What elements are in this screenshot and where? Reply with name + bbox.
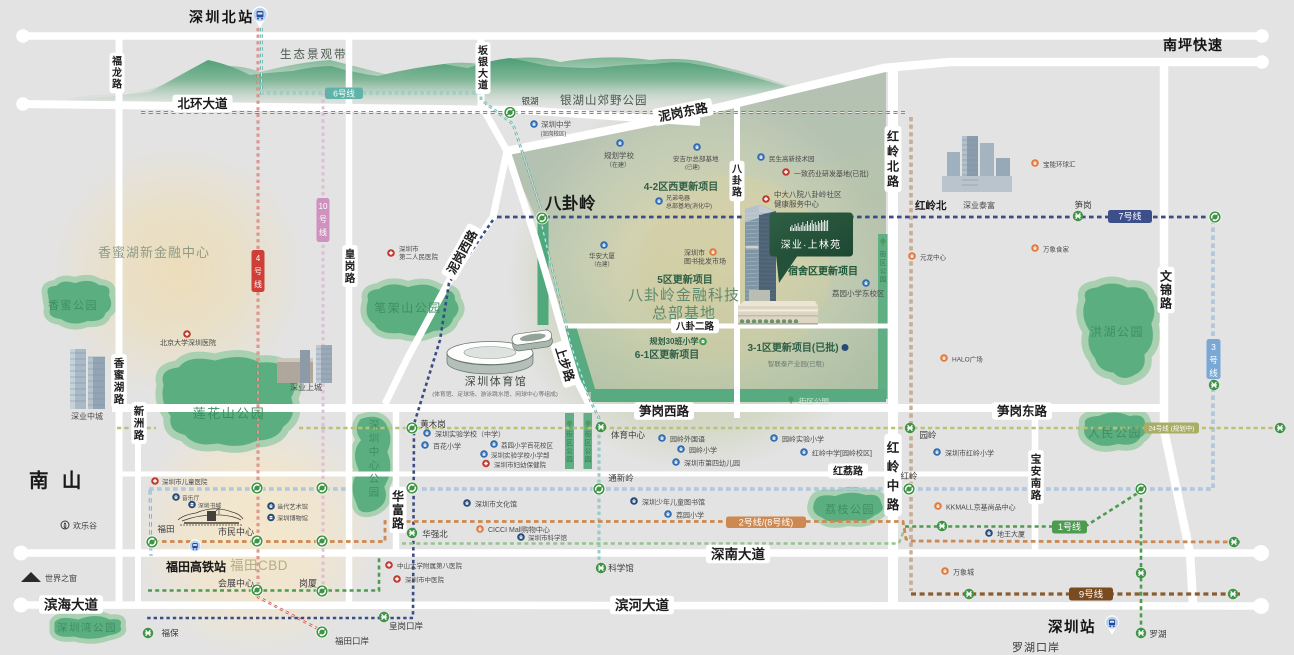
svg-text:富: 富 <box>392 502 404 517</box>
svg-text:区: 区 <box>566 439 573 447</box>
svg-text:黄木岗: 黄木岗 <box>420 419 446 429</box>
svg-text:园岭外国语: 园岭外国语 <box>670 435 705 444</box>
svg-text:香蜜湖新金融中心: 香蜜湖新金融中心 <box>98 245 210 260</box>
svg-text:中: 中 <box>369 445 380 458</box>
svg-text:深圳市: 深圳市 <box>684 248 705 257</box>
svg-text:岭: 岭 <box>887 144 899 159</box>
svg-text:号: 号 <box>254 267 262 276</box>
svg-text:2号线/(8号线): 2号线/(8号线) <box>739 516 794 527</box>
svg-text:4-2区西更新项目: 4-2区西更新项目 <box>644 180 718 193</box>
svg-text:南: 南 <box>1031 476 1042 489</box>
svg-text:八: 八 <box>731 164 743 176</box>
svg-text:深圳市: 深圳市 <box>399 244 419 253</box>
svg-text:深业泰富: 深业泰富 <box>963 200 995 210</box>
svg-text:路: 路 <box>887 497 900 512</box>
svg-text:公: 公 <box>585 448 592 455</box>
svg-text:文: 文 <box>1160 268 1173 283</box>
svg-text:深圳中学: 深圳中学 <box>541 119 571 129</box>
svg-text:罗湖: 罗湖 <box>1149 629 1166 639</box>
svg-text:深圳书城: 深圳书城 <box>198 502 221 510</box>
svg-text:深圳少年儿童图书馆: 深圳少年儿童图书馆 <box>642 498 705 507</box>
svg-text:会展中心: 会展中心 <box>218 578 254 589</box>
svg-text:皇岗口岸: 皇岗口岸 <box>389 621 424 631</box>
svg-text:笋岗东路: 笋岗东路 <box>997 404 1048 419</box>
svg-text:岗: 岗 <box>345 259 356 272</box>
svg-text:圳: 圳 <box>369 433 380 445</box>
svg-text:元龙中心: 元龙中心 <box>920 253 947 262</box>
svg-text:银湖: 银湖 <box>521 96 538 106</box>
svg-text:荔枝公园: 荔枝公园 <box>825 502 875 516</box>
svg-text:宿舍区更新项目: 宿舍区更新项目 <box>788 265 858 278</box>
svg-text:（在建）: （在建） <box>606 161 630 169</box>
svg-text:红: 红 <box>887 129 899 144</box>
svg-text:北京大学深圳医院: 北京大学深圳医院 <box>160 338 216 347</box>
svg-text:心: 心 <box>369 460 380 472</box>
svg-text:线: 线 <box>1209 368 1218 378</box>
svg-text:公: 公 <box>369 473 380 485</box>
svg-text:科学馆: 科学馆 <box>608 563 634 573</box>
svg-text:道: 道 <box>478 78 488 91</box>
svg-text:宝: 宝 <box>1031 452 1042 465</box>
svg-text:规划30班小学: 规划30班小学 <box>650 336 699 346</box>
svg-text:红荔路: 红荔路 <box>833 465 864 478</box>
svg-text:福保: 福保 <box>161 628 179 638</box>
svg-text:音乐厅: 音乐厅 <box>182 494 200 502</box>
svg-text:街: 街 <box>880 249 887 258</box>
svg-text:3: 3 <box>1211 342 1216 352</box>
svg-text:福田: 福田 <box>157 524 174 534</box>
svg-text:八卦二路: 八卦二路 <box>675 320 715 332</box>
svg-text:路: 路 <box>1031 488 1042 501</box>
svg-text:市民中心: 市民中心 <box>218 526 254 537</box>
svg-text:总部基地: 总部基地 <box>652 305 716 322</box>
svg-text:深圳博物馆: 深圳博物馆 <box>277 515 308 523</box>
svg-text:笋岗: 笋岗 <box>1074 200 1091 210</box>
svg-text:街: 街 <box>585 429 592 438</box>
svg-text:银湖山郊野公园: 银湖山郊野公园 <box>560 93 648 107</box>
svg-text:当代艺术馆: 当代艺术馆 <box>277 503 308 511</box>
svg-text:红岭北: 红岭北 <box>915 199 947 212</box>
svg-text:园: 园 <box>585 456 592 464</box>
svg-text:八卦岭: 八卦岭 <box>545 193 596 213</box>
svg-text:红岭中学[园岭校区]: 红岭中学[园岭校区] <box>812 449 872 458</box>
svg-text:(已建): (已建) <box>685 163 700 171</box>
svg-text:规划学校: 规划学校 <box>604 150 634 160</box>
svg-text:一致药业研发基地(已批): 一致药业研发基地(已批) <box>794 169 869 178</box>
svg-text:深圳市中医院: 深圳市中医院 <box>405 575 445 584</box>
svg-text:莲花山公园: 莲花山公园 <box>193 406 266 421</box>
svg-text:中大八院八卦岭社区: 中大八院八卦岭社区 <box>774 189 842 199</box>
svg-text:华强北: 华强北 <box>422 529 448 539</box>
svg-text:路: 路 <box>134 428 145 441</box>
svg-text:世界之窗: 世界之窗 <box>45 573 77 583</box>
svg-text:深圳湾公园: 深圳湾公园 <box>57 621 117 634</box>
svg-text:华安大厦: 华安大厦 <box>589 251 616 260</box>
svg-text:4: 4 <box>256 254 261 263</box>
svg-text:卦: 卦 <box>732 174 742 187</box>
svg-text:CICCI Mall购物中心: CICCI Mall购物中心 <box>488 525 550 534</box>
svg-text:深圳市第四幼儿园: 深圳市第四幼儿园 <box>684 459 740 468</box>
svg-text:深圳实验学校小学部: 深圳实验学校小学部 <box>491 451 550 460</box>
svg-text:园: 园 <box>880 276 887 284</box>
svg-text:龙: 龙 <box>111 66 122 79</box>
svg-text:笔架山公园: 笔架山公园 <box>374 300 442 315</box>
svg-text:万象城: 万象城 <box>953 568 974 577</box>
svg-text:欢乐谷: 欢乐谷 <box>73 521 97 531</box>
svg-text:荔园小学百花校区: 荔园小学百花校区 <box>501 441 554 450</box>
svg-text:安: 安 <box>1031 464 1042 477</box>
svg-text:中山大学附属第八医院: 中山大学附属第八医院 <box>397 561 463 570</box>
svg-text:深圳市妇幼保健院: 深圳市妇幼保健院 <box>494 460 547 469</box>
svg-text:路: 路 <box>887 174 900 189</box>
svg-text:园: 园 <box>369 487 380 499</box>
svg-text:福田CBD: 福田CBD <box>230 558 288 573</box>
svg-text:公: 公 <box>880 268 887 275</box>
svg-text:民生高新技术园: 民生高新技术园 <box>769 154 815 163</box>
svg-text:9号线: 9号线 <box>1079 588 1104 600</box>
svg-text:园岭实验小学: 园岭实验小学 <box>782 435 824 444</box>
svg-text:大: 大 <box>478 67 488 80</box>
svg-text:深业上城: 深业上城 <box>290 382 322 392</box>
svg-text:路: 路 <box>732 186 743 199</box>
svg-text:智联泰产业园(已租): 智联泰产业园(已租) <box>768 359 824 368</box>
svg-text:地王大厦: 地王大厦 <box>997 530 1025 539</box>
svg-text:区: 区 <box>880 259 887 267</box>
svg-text:坂: 坂 <box>478 44 489 57</box>
svg-text:1号线: 1号线 <box>1058 521 1081 532</box>
svg-text:中: 中 <box>887 478 900 493</box>
svg-text:荔园小学东校区: 荔园小学东校区 <box>832 288 885 298</box>
svg-text:北: 北 <box>887 159 899 174</box>
svg-text:荔园小学: 荔园小学 <box>676 511 704 520</box>
svg-text:深圳实验学校（中学）: 深圳实验学校（中学） <box>435 430 505 439</box>
svg-text:公: 公 <box>566 448 573 455</box>
svg-text:KKMALL京基尚品中心: KKMALL京基尚品中心 <box>946 503 1016 512</box>
svg-text:安吉尔总部基地: 安吉尔总部基地 <box>673 154 719 163</box>
svg-text:银: 银 <box>478 55 489 68</box>
svg-text:园: 园 <box>566 456 573 464</box>
svg-text:第二人民医院: 第二人民医院 <box>399 252 439 261</box>
svg-text:岭: 岭 <box>887 459 900 474</box>
svg-text:生态景观带: 生态景观带 <box>280 47 348 61</box>
svg-text:深业中城: 深业中城 <box>71 411 103 421</box>
svg-text:[泥岗校区]: [泥岗校区] <box>541 130 567 138</box>
svg-text:锦: 锦 <box>1160 282 1172 297</box>
svg-text:24号线 (规划中): 24号线 (规划中) <box>1149 423 1195 432</box>
svg-text:福田高铁站: 福田高铁站 <box>165 559 226 574</box>
svg-text:深圳市文化馆: 深圳市文化馆 <box>475 500 517 509</box>
svg-text:深圳北站: 深圳北站 <box>189 9 255 25</box>
svg-text:笋岗西路: 笋岗西路 <box>639 404 690 419</box>
svg-text:号: 号 <box>1209 355 1218 365</box>
svg-text:深圳市科学馆: 深圳市科学馆 <box>528 533 568 542</box>
svg-text:北环大道: 北环大道 <box>177 96 228 111</box>
svg-text:岗厦: 岗厦 <box>299 579 317 589</box>
svg-text:新: 新 <box>134 404 145 417</box>
svg-text:百花小学: 百花小学 <box>433 442 461 451</box>
svg-text:HALO广场: HALO广场 <box>952 355 983 364</box>
svg-text:线: 线 <box>254 279 262 289</box>
svg-text:深圳市儿童医院: 深圳市儿童医院 <box>162 477 208 486</box>
svg-text:图书批发市场: 图书批发市场 <box>684 257 726 266</box>
svg-text:深: 深 <box>369 419 380 431</box>
svg-text:深圳站: 深圳站 <box>1048 618 1096 636</box>
svg-text:滨海大道: 滨海大道 <box>44 596 98 612</box>
svg-text:线: 线 <box>319 227 327 237</box>
svg-text:人民公园: 人民公园 <box>1088 426 1142 440</box>
svg-text:深业·上林苑: 深业·上林苑 <box>781 238 842 251</box>
svg-text:八卦岭金融科技: 八卦岭金融科技 <box>628 287 740 304</box>
svg-text:兄弟电器: 兄弟电器 <box>666 194 690 202</box>
svg-text:6号线: 6号线 <box>333 88 355 98</box>
svg-text:洪湖公园: 洪湖公园 <box>1090 324 1144 339</box>
svg-text:罗湖口岸: 罗湖口岸 <box>1012 641 1060 654</box>
svg-text:路: 路 <box>112 78 123 91</box>
svg-text:区: 区 <box>585 439 592 447</box>
svg-text:深圳市红岭小学: 深圳市红岭小学 <box>945 449 994 458</box>
svg-text:红岭: 红岭 <box>900 471 918 481</box>
svg-text:6-1区更新项目: 6-1区更新项目 <box>635 348 699 361</box>
svg-text:路: 路 <box>114 392 125 405</box>
svg-text:10: 10 <box>319 202 328 211</box>
svg-text:深圳体育馆: 深圳体育馆 <box>465 374 528 388</box>
svg-text:总部基地(消化中): 总部基地(消化中) <box>666 202 712 210</box>
svg-text:7号线: 7号线 <box>1118 211 1141 222</box>
svg-text:园岭: 园岭 <box>919 430 937 440</box>
svg-text:(体育馆、足球场、游泳跳水馆、网球中心等组成): (体育馆、足球场、游泳跳水馆、网球中心等组成) <box>432 390 558 398</box>
svg-text:南坪快速: 南坪快速 <box>1163 37 1223 53</box>
svg-text:（在建）: （在建） <box>591 260 613 268</box>
svg-text:路: 路 <box>345 271 356 284</box>
svg-text:路: 路 <box>392 515 405 530</box>
svg-text:深南大道: 深南大道 <box>711 546 765 562</box>
svg-text:宝能环球汇: 宝能环球汇 <box>1043 160 1076 169</box>
svg-text:蜜: 蜜 <box>114 368 125 381</box>
svg-text:香蜜公园: 香蜜公园 <box>48 298 98 312</box>
svg-text:红: 红 <box>887 440 900 455</box>
svg-text:路: 路 <box>1160 295 1173 310</box>
svg-text:园岭小学: 园岭小学 <box>689 446 717 455</box>
svg-text:体育中心: 体育中心 <box>611 430 646 440</box>
svg-text:滨河大道: 滨河大道 <box>615 597 669 613</box>
svg-text:湖: 湖 <box>114 380 125 393</box>
svg-text:皇: 皇 <box>345 247 356 260</box>
svg-text:万象食家: 万象食家 <box>1043 245 1070 254</box>
svg-text:街区公园: 街区公园 <box>799 396 829 406</box>
svg-text:3-1区更新项目(已批): 3-1区更新项目(已批) <box>747 341 838 354</box>
svg-text:福田口岸: 福田口岸 <box>335 636 370 646</box>
svg-text:号: 号 <box>319 215 327 224</box>
svg-text:5区更新项目: 5区更新项目 <box>657 273 713 286</box>
svg-text:福: 福 <box>111 55 122 68</box>
svg-text:街: 街 <box>566 429 573 438</box>
svg-text:健康服务中心: 健康服务中心 <box>774 199 819 209</box>
svg-text:洲: 洲 <box>134 417 145 429</box>
svg-text:香: 香 <box>113 356 125 369</box>
svg-text:通新岭: 通新岭 <box>608 473 634 483</box>
svg-text:南 山: 南 山 <box>29 470 85 492</box>
svg-text:华: 华 <box>392 488 404 503</box>
